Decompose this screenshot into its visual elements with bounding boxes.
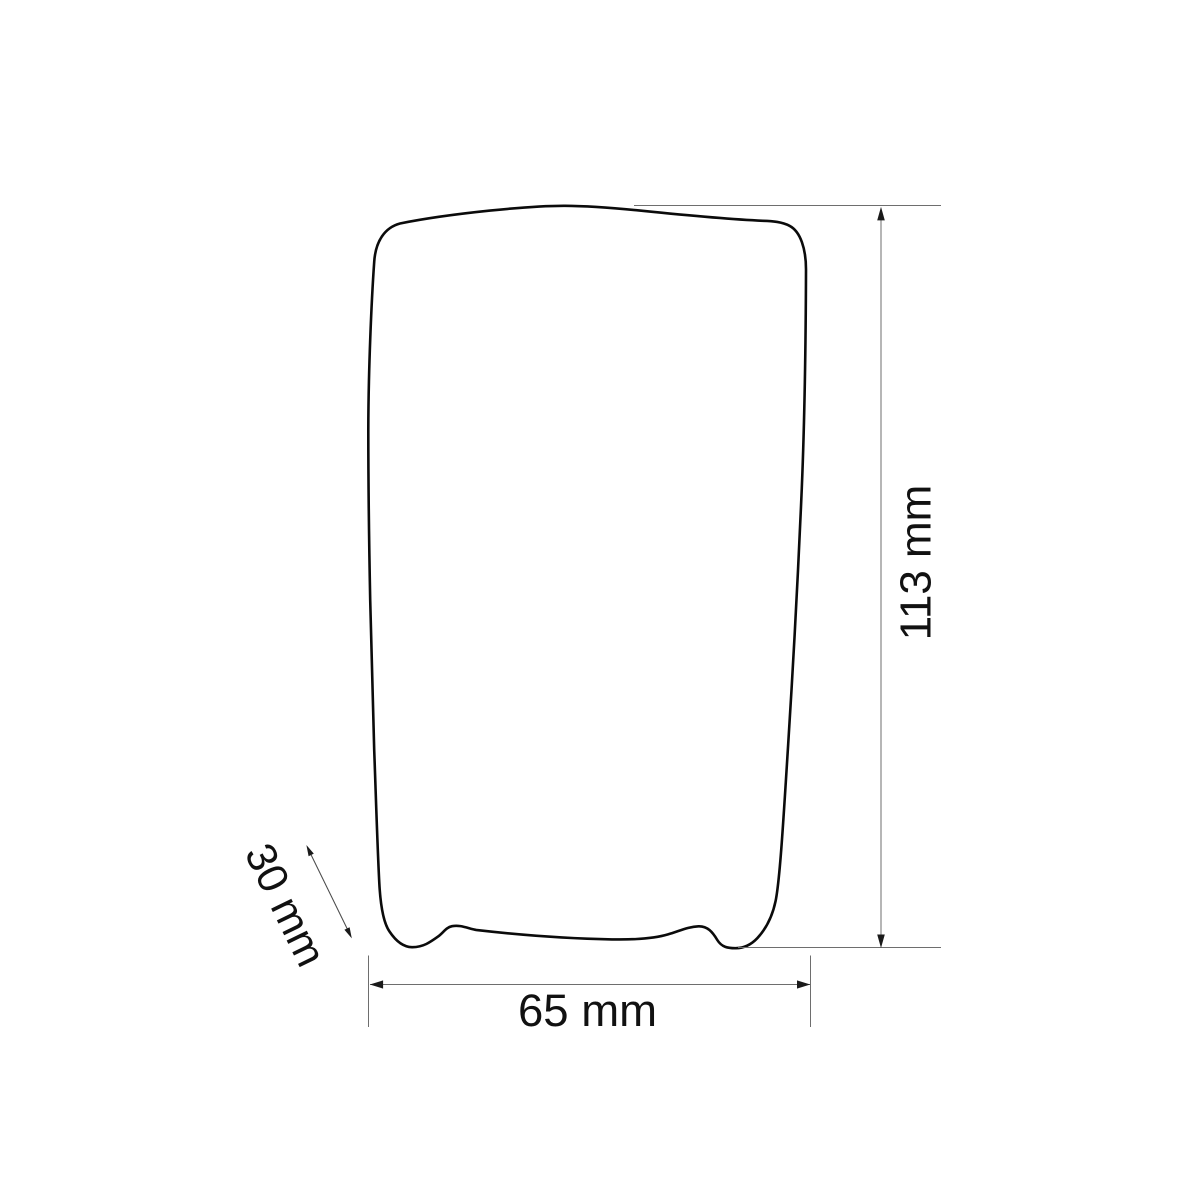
svg-text:113 mm: 113 mm xyxy=(892,485,941,641)
svg-text:65 mm: 65 mm xyxy=(518,985,657,1036)
